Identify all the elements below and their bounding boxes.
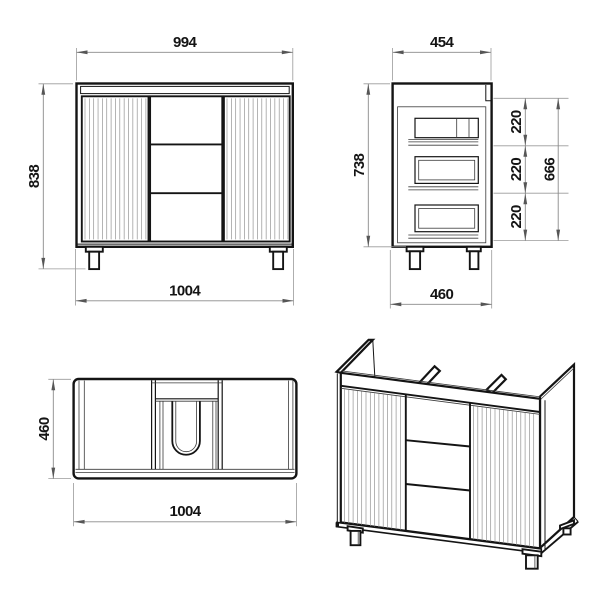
dim-text-738: 738 <box>351 153 368 176</box>
side-drawer-2 <box>408 157 478 190</box>
dimension-arrow <box>74 520 85 524</box>
dim-text-460-side: 460 <box>430 286 453 303</box>
dimension-arrow <box>51 468 55 479</box>
dimension-arrow <box>556 98 560 109</box>
top-u-cutout-inner <box>176 401 197 452</box>
dimension-arrow <box>523 146 527 157</box>
dimension-arrow <box>523 193 527 204</box>
dim-front-bottom-width: 1004 <box>76 249 294 306</box>
dimension-arrow <box>77 50 88 54</box>
side-view: 454 738 220 220 220 666 460 <box>351 34 569 309</box>
technical-drawing: 994 838 1004 <box>0 0 613 600</box>
dimension-arrow <box>282 50 293 54</box>
dimension-arrow <box>481 302 492 306</box>
dim-text-220-bottom: 220 <box>508 205 525 228</box>
dimension-arrow <box>283 299 294 303</box>
isometric-view <box>336 340 579 569</box>
top-u-cutout <box>172 401 200 455</box>
drawing-canvas: 994 838 1004 <box>0 0 613 600</box>
top-side-panels <box>79 381 293 470</box>
dimension-arrow <box>51 379 55 390</box>
dim-text-994: 994 <box>173 34 197 51</box>
front-right-door <box>224 96 290 241</box>
dimension-arrow <box>523 135 527 146</box>
dim-side-drawer-pitches: 220 220 220 666 <box>494 98 569 240</box>
top-plumbing-box <box>160 401 216 469</box>
dimension-arrow <box>390 302 401 306</box>
dim-text-460-top: 460 <box>36 417 53 440</box>
top-front-edge-lines <box>76 469 295 472</box>
dimension-arrow <box>366 236 370 247</box>
top-outline <box>74 379 297 478</box>
dim-top-depth: 460 <box>36 379 71 478</box>
dimension-arrow <box>285 520 296 524</box>
front-drawer-stack <box>150 96 222 241</box>
dimension-arrow <box>480 50 491 54</box>
dimension-arrow <box>41 258 45 269</box>
dim-text-1004-top: 1004 <box>170 503 202 520</box>
dim-front-top-width: 994 <box>77 34 293 81</box>
dim-text-454: 454 <box>430 34 454 51</box>
dim-text-838: 838 <box>26 165 43 188</box>
dim-text-220-middle: 220 <box>508 158 525 181</box>
dimension-arrow <box>76 299 87 303</box>
side-back-panel-notch <box>486 85 491 101</box>
front-legs <box>86 247 287 269</box>
dim-text-666: 666 <box>541 158 558 181</box>
dimension-arrow <box>556 230 560 241</box>
dimension-arrow <box>523 98 527 109</box>
dimension-arrow <box>523 182 527 193</box>
side-drawer-3 <box>408 205 478 238</box>
dim-top-width: 1004 <box>74 483 297 526</box>
front-view: 994 838 1004 <box>26 34 294 306</box>
dim-text-220-top: 220 <box>508 110 525 133</box>
side-legs <box>407 247 481 269</box>
side-drawer-1 <box>408 118 478 145</box>
top-view: 460 1004 <box>36 379 296 526</box>
dim-side-top-depth: 454 <box>393 34 491 81</box>
dim-text-1004: 1004 <box>169 282 201 299</box>
dimension-arrow <box>393 50 404 54</box>
iso-left-panel-fin <box>337 340 373 373</box>
dimension-arrow <box>41 84 45 95</box>
front-top-rail <box>81 86 290 93</box>
dimension-arrow <box>366 84 370 95</box>
top-divider-panels <box>152 380 223 469</box>
dimension-arrow <box>523 230 527 241</box>
